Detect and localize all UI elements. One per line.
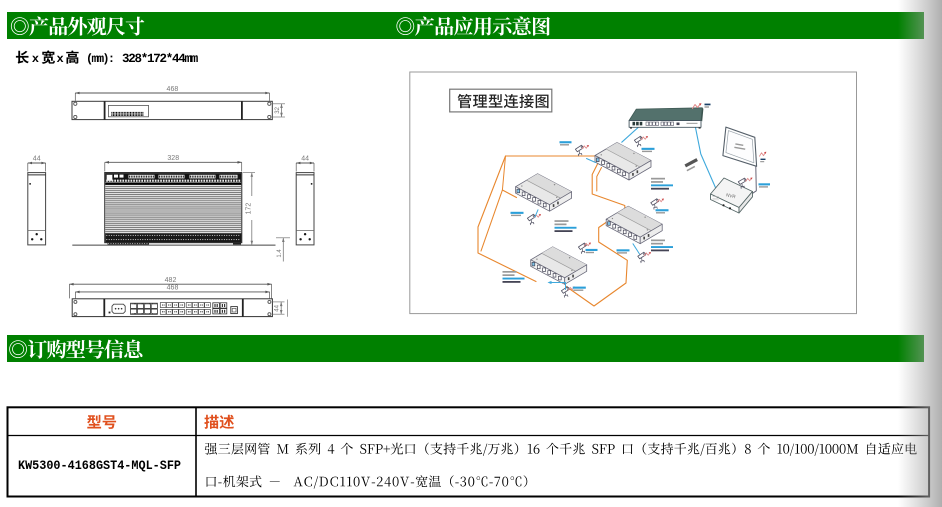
svg-text:172: 172 xyxy=(246,203,253,215)
svg-text:1.4: 1.4 xyxy=(277,249,283,258)
svg-text:32: 32 xyxy=(275,106,281,113)
svg-text:44: 44 xyxy=(275,304,281,311)
svg-text:KW5300-4168GST4-MQL-SFP: KW5300-4168GST4-MQL-SFP xyxy=(18,459,181,473)
svg-text:44: 44 xyxy=(33,156,41,163)
svg-text:468: 468 xyxy=(167,86,179,93)
svg-text:468: 468 xyxy=(167,285,179,292)
svg-text:482: 482 xyxy=(165,277,177,284)
svg-text:44: 44 xyxy=(301,156,309,163)
svg-text:328: 328 xyxy=(167,155,179,162)
